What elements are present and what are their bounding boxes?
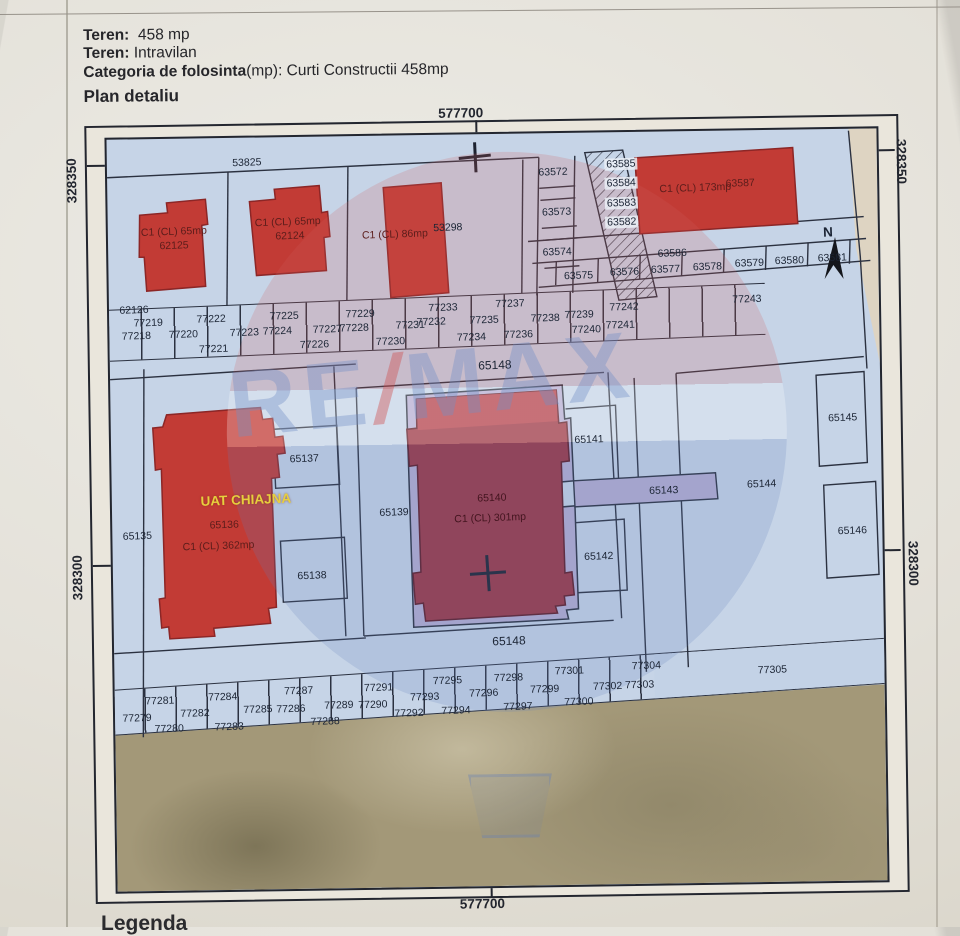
- parcel-label: 77296: [469, 687, 499, 700]
- parcel-label: 77287: [284, 684, 314, 697]
- teren-type-row: Teren: Intravilan: [83, 42, 448, 63]
- grid-coord-right-bottom: 328300: [906, 541, 922, 586]
- parcel-label: 62125: [159, 239, 189, 252]
- parcel-label: 77226: [300, 338, 330, 351]
- scanned-cadastral-page: { "header": { "teren_label": "Teren:", "…: [0, 0, 960, 927]
- teren2-value: Intravilan: [134, 44, 197, 62]
- parcel-label: C1 (CL) 65mp: [255, 215, 321, 229]
- parcel-label: 77293: [410, 691, 440, 704]
- parcel-label: 77242: [609, 301, 639, 314]
- parcel-label: 77301: [555, 664, 585, 677]
- parcel-label: 77230: [376, 335, 406, 348]
- parcel-label: UAT CHIAJNA: [200, 491, 291, 509]
- parcel-label: 77289: [324, 699, 354, 712]
- teren-value: 458 mp: [138, 26, 190, 43]
- parcel-label: 77241: [605, 319, 635, 332]
- parcel-label: 77281: [145, 695, 175, 708]
- parcel-label: 63587: [725, 177, 755, 190]
- parcel-label: 65142: [584, 550, 614, 563]
- parcel-label: 77219: [133, 317, 163, 330]
- parcel-label: 53298: [433, 221, 463, 234]
- parcel-label: 63584: [604, 177, 638, 190]
- teren2-label: Teren:: [83, 45, 129, 62]
- grid-coord-left-bottom: 328300: [70, 555, 86, 600]
- parcel-label: 65144: [747, 478, 777, 491]
- parcel-label: 77243: [732, 293, 762, 306]
- grid-coord-right-top: 328350: [894, 139, 910, 184]
- plan-detaliu-map: 577700 577700 328350 328300 328350 32830…: [84, 114, 909, 904]
- parcel-label: 63575: [564, 269, 594, 282]
- categoria-label: Categoria de folosinta: [83, 62, 246, 80]
- parcel-label: 65138: [297, 569, 327, 582]
- parcel-label: N: [823, 224, 833, 239]
- parcel-label: C1 (CL) 362mp: [182, 539, 254, 554]
- parcel-label: 63577: [651, 263, 681, 276]
- parcel-label: 77229: [345, 307, 375, 320]
- parcel-label: 63580: [775, 254, 805, 267]
- parcel-label: 65143: [649, 484, 679, 497]
- parcel-label: 77279: [122, 712, 152, 725]
- document-header: Teren: 458 mp Teren: Intravilan Categori…: [83, 24, 449, 106]
- parcel-label: 77282: [180, 707, 210, 720]
- parcel-label: 65145: [828, 411, 858, 424]
- tick-left-top: [87, 165, 106, 167]
- grid-coord-top: 577700: [438, 105, 483, 121]
- parcel-label: 65135: [123, 530, 153, 543]
- parcel-label: 65136: [209, 519, 239, 532]
- parcel-label: 62126: [119, 304, 149, 317]
- parcel-label: 77299: [530, 683, 560, 696]
- parcel-label: 77239: [564, 308, 594, 321]
- parcel-label: 77237: [495, 297, 525, 310]
- parcel-label: 77236: [504, 328, 534, 341]
- parcel-label: C1 (CL) 173mp: [659, 181, 731, 196]
- parcel-label: 77302: [593, 680, 623, 693]
- parcel-label: 77228: [339, 322, 369, 335]
- parcel-label: 63581: [818, 251, 848, 264]
- parcel-label: 77298: [494, 671, 524, 684]
- parcel-label: 77288: [310, 715, 340, 728]
- parcel-label: 77233: [428, 301, 458, 314]
- parcel-label: 77294: [441, 704, 471, 717]
- parcel-label: 77300: [564, 695, 594, 708]
- legend-title-partial: Legenda: [101, 912, 187, 936]
- top-table-edge: [0, 6, 960, 15]
- parcel-label: 63585: [604, 158, 638, 171]
- parcel-label: 77283: [214, 720, 244, 733]
- parcel-label: 65141: [574, 433, 604, 446]
- page-title: Plan detaliu: [84, 84, 449, 106]
- parcel-label: 77232: [416, 315, 446, 328]
- parcel-label: 65146: [838, 524, 868, 537]
- parcel-label: 65148: [478, 357, 512, 372]
- parcel-label: 77218: [122, 330, 152, 343]
- parcel-label: 77305: [758, 663, 788, 676]
- parcel-label: 77220: [169, 328, 199, 341]
- parcel-label: 63583: [605, 197, 639, 210]
- parcel-label: 77285: [243, 703, 273, 716]
- parcel-labels: 53825C1 (CL) 65mp62125C1 (CL) 65mp62124C…: [106, 128, 887, 891]
- parcel-label: 63582: [605, 216, 639, 229]
- parcel-label: C1 (CL) 301mp: [454, 511, 526, 526]
- parcel-label: 77284: [208, 691, 238, 704]
- teren-label: Teren:: [83, 27, 129, 44]
- parcel-label: 63586: [657, 247, 687, 260]
- parcel-label: 63574: [542, 246, 572, 259]
- parcel-label: 77238: [530, 312, 560, 325]
- parcel-label: C1 (CL) 65mp: [141, 225, 207, 239]
- parcel-label: 65137: [289, 452, 319, 465]
- parcel-label: 77304: [632, 659, 662, 672]
- parcel-label: 65139: [379, 506, 409, 519]
- parcel-label: 77292: [394, 707, 424, 720]
- parcel-label: 77221: [199, 343, 229, 356]
- tick-left-bottom: [93, 565, 112, 567]
- parcel-label: 77303: [625, 678, 655, 691]
- parcel-label: 77290: [358, 698, 388, 711]
- parcel-label: 77235: [469, 314, 499, 327]
- parcel-label: C1 (CL) 86mp: [362, 227, 428, 241]
- parcel-label: 77295: [433, 674, 463, 687]
- parcel-label: 77291: [364, 681, 394, 694]
- parcel-label: 77286: [276, 703, 306, 716]
- parcel-label: 63572: [538, 166, 568, 179]
- parcel-label: 63576: [610, 266, 640, 279]
- map-canvas: RE/MAX 53825C1 (CL) 65mp62125C1 (CL) 65m…: [104, 126, 889, 893]
- page-edge-line: [936, 0, 938, 927]
- parcel-label: 77222: [196, 313, 226, 326]
- parcel-label: 77225: [269, 310, 299, 323]
- parcel-label: 62124: [275, 230, 305, 243]
- parcel-label: 65140: [477, 492, 507, 505]
- teren-area-row: Teren: 458 mp: [83, 24, 448, 45]
- parcel-label: 77223: [230, 326, 260, 339]
- parcel-label: 77297: [503, 700, 533, 713]
- parcel-label: 77224: [263, 325, 293, 338]
- grid-coord-left-top: 328350: [64, 158, 80, 203]
- parcel-label: 77240: [572, 323, 602, 336]
- parcel-label: 63578: [693, 260, 723, 273]
- parcel-label: 63579: [735, 257, 765, 270]
- categoria-value: (mp): Curti Constructii 458mp: [246, 61, 449, 80]
- parcel-label: 77234: [457, 331, 487, 344]
- page-fold-line: [66, 0, 68, 927]
- parcel-label: 65148: [492, 633, 526, 648]
- parcel-label: 53825: [232, 156, 262, 169]
- categoria-row: Categoria de folosinta(mp): Curti Constr…: [83, 61, 448, 82]
- parcel-label: 77227: [313, 323, 343, 336]
- parcel-label: 77280: [154, 722, 184, 735]
- grid-coord-bottom: 577700: [460, 896, 505, 912]
- parcel-label: 63573: [542, 206, 572, 219]
